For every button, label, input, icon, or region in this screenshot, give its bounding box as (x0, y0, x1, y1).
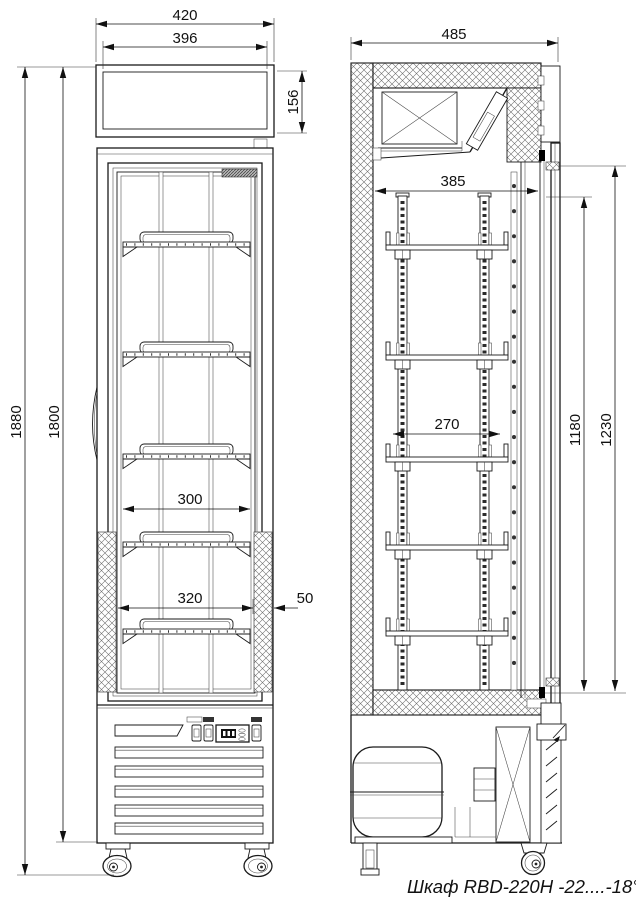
shelf-rails (396, 193, 491, 690)
dim-label: 396 (172, 30, 197, 47)
condenser-fan-shroud (496, 727, 530, 842)
door-top-cover (538, 66, 560, 142)
dim-label: 485 (441, 26, 466, 43)
caster-side (521, 843, 547, 875)
dim-label: 1180 (567, 414, 584, 446)
front-view (93, 65, 275, 877)
dim-label: 1880 (8, 405, 25, 438)
defrost-switch (252, 725, 261, 741)
machine-compartment-side (350, 703, 566, 875)
hinge-bracket (537, 724, 566, 742)
dim-label: 156 (285, 89, 302, 114)
light-switch (204, 725, 213, 741)
front-leg (361, 843, 379, 875)
dim-label: 1800 (46, 405, 63, 438)
compressor (350, 747, 444, 837)
door-top-seal (539, 150, 545, 161)
door-section (521, 143, 560, 712)
shelf-rail-front (478, 193, 491, 690)
dim-lightbox-height: 156 (277, 71, 307, 133)
dim-label: 50 (297, 590, 314, 607)
panel-label (203, 717, 214, 722)
drawing-sheet: 420 396 156 1880 1800 300 (0, 0, 636, 900)
dim-body-height: 1800 (46, 67, 98, 842)
caster-front-right (244, 843, 272, 877)
dim-side-wall: 50 (274, 590, 313, 608)
caster-front-left (103, 843, 131, 877)
dim-overall-depth: 485 (351, 26, 558, 62)
light-box (96, 65, 274, 148)
dim-label: 420 (172, 7, 197, 24)
panel-label (251, 717, 262, 722)
door-mullion-left (159, 172, 163, 693)
door-bottom-seal (539, 687, 545, 698)
dim-label: 385 (440, 173, 465, 190)
brand-label (222, 169, 257, 177)
evaporator-fan (466, 92, 507, 150)
technical-drawing: 420 396 156 1880 1800 300 (0, 0, 636, 900)
lightbox-connector (254, 139, 267, 148)
temperature-display (216, 725, 249, 742)
dim-label: 270 (434, 416, 459, 433)
dim-label: 1230 (598, 413, 615, 446)
dim-lightbox-width: 396 (103, 30, 267, 69)
filter-dryer (474, 768, 495, 801)
base-plate (355, 837, 452, 843)
drawing-caption: Шкаф RBD-220H -22....-18°C (407, 876, 636, 897)
door-mullion-right (209, 172, 213, 693)
door-gasket-strip (511, 172, 517, 690)
shelf-rail-rear (396, 193, 409, 690)
evaporator (378, 92, 462, 151)
dim-label: 320 (177, 590, 202, 607)
dim-label: 300 (177, 491, 202, 508)
power-switch (192, 725, 201, 741)
